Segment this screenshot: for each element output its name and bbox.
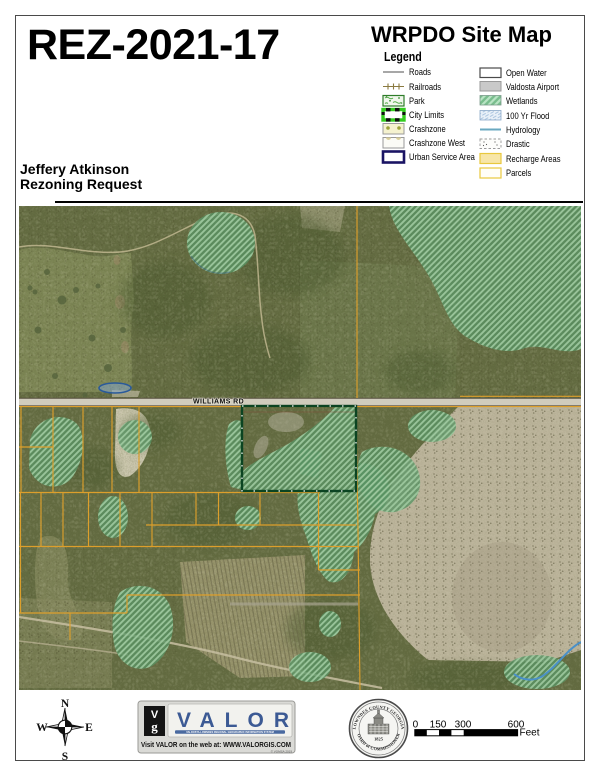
svg-text:© VGMSA 2019: © VGMSA 2019	[271, 750, 293, 754]
svg-text:N: N	[61, 698, 70, 710]
svg-text:S: S	[62, 751, 68, 763]
svg-text:g: g	[151, 719, 158, 734]
svg-text:VALDOSTA-LOWNDES REGIONAL GEOG: VALDOSTA-LOWNDES REGIONAL GEOGRAPHIC INF…	[186, 731, 274, 734]
svg-text:WILLIAMS RD: WILLIAMS RD	[193, 398, 244, 405]
svg-text:Visit VALOR on the web at: WWW: Visit VALOR on the web at: WWW.VALORGIS.…	[141, 740, 291, 749]
svg-text:E: E	[85, 722, 93, 734]
svg-text:1825: 1825	[374, 737, 384, 742]
svg-text:300: 300	[455, 720, 472, 731]
svg-text:150: 150	[430, 720, 447, 731]
svg-text:W: W	[36, 722, 48, 734]
svg-text:Feet: Feet	[520, 727, 540, 738]
svg-text:0: 0	[413, 720, 419, 731]
